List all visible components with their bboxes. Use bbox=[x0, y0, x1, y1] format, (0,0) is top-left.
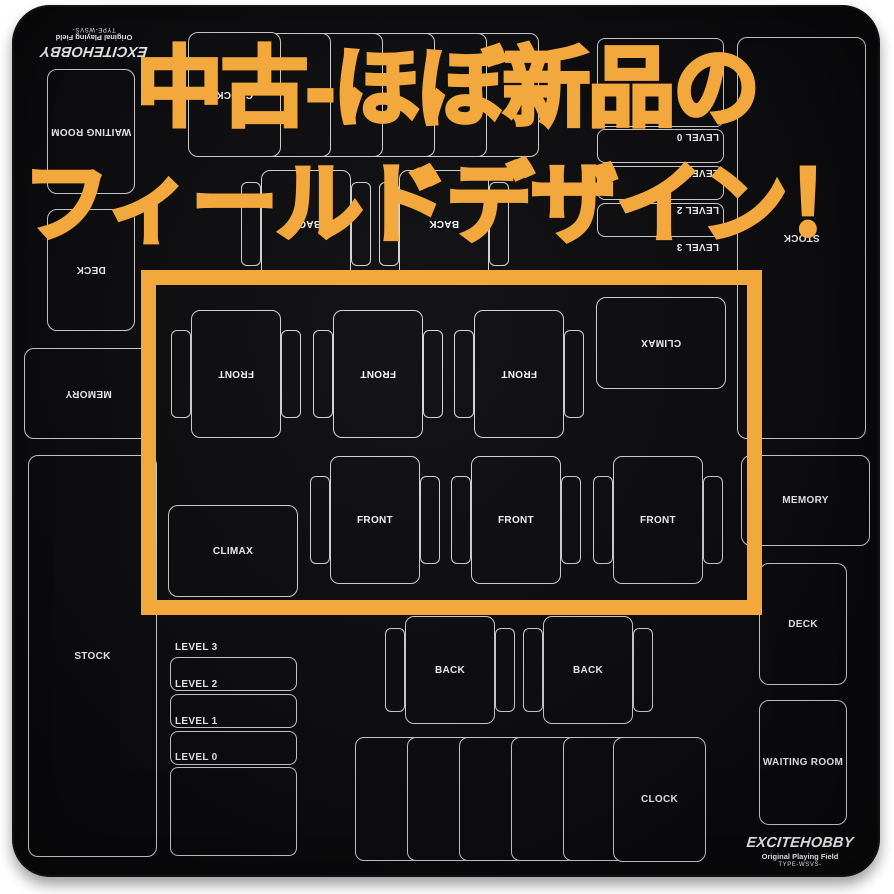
zone-level-rect-3 bbox=[597, 38, 724, 127]
zone-back: BACK bbox=[399, 170, 489, 278]
brand-subtitle: Original Playing Field bbox=[34, 33, 154, 42]
zone-clock-label: CLOCK bbox=[216, 89, 253, 100]
zone-back-label: BACK bbox=[291, 219, 321, 230]
zone-stock-label: STOCK bbox=[783, 233, 819, 244]
zone-level-label-1: LEVEL 2 bbox=[677, 204, 720, 215]
brand-type-label: TYPE-WSVS- bbox=[34, 26, 154, 32]
zone-memory: MEMORY bbox=[24, 348, 153, 439]
zone-clock: CLOCK bbox=[188, 32, 281, 157]
back-side-tab bbox=[489, 182, 509, 266]
highlight-rectangle bbox=[141, 270, 762, 615]
back-side-tab bbox=[241, 182, 261, 266]
back-side-tab bbox=[351, 182, 371, 266]
zone-back: BACK bbox=[261, 170, 351, 278]
zone-deck: DECK bbox=[47, 209, 135, 331]
playmat-product-photo: STOCKLEVEL 3LEVEL 2LEVEL 1LEVEL 0CLIMAXF… bbox=[0, 0, 894, 894]
zone-memory-label: MEMORY bbox=[65, 388, 111, 399]
zone-deck-label: DECK bbox=[76, 265, 106, 276]
brand-title: EXCITEHOBBY bbox=[33, 43, 155, 59]
zone-waiting-room-label: WAITING ROOM bbox=[51, 126, 131, 137]
zone-level-label-2: LEVEL 1 bbox=[677, 167, 720, 178]
zone-waiting-room: WAITING ROOM bbox=[47, 69, 135, 194]
brand-logo: EXCITEHOBBYOriginal Playing FieldTYPE-WS… bbox=[34, 26, 154, 59]
back-side-tab bbox=[379, 182, 399, 266]
zone-level-label-0: LEVEL 3 bbox=[677, 241, 720, 252]
zone-level-label-3: LEVEL 0 bbox=[677, 131, 720, 142]
zone-back-label: BACK bbox=[429, 219, 459, 230]
